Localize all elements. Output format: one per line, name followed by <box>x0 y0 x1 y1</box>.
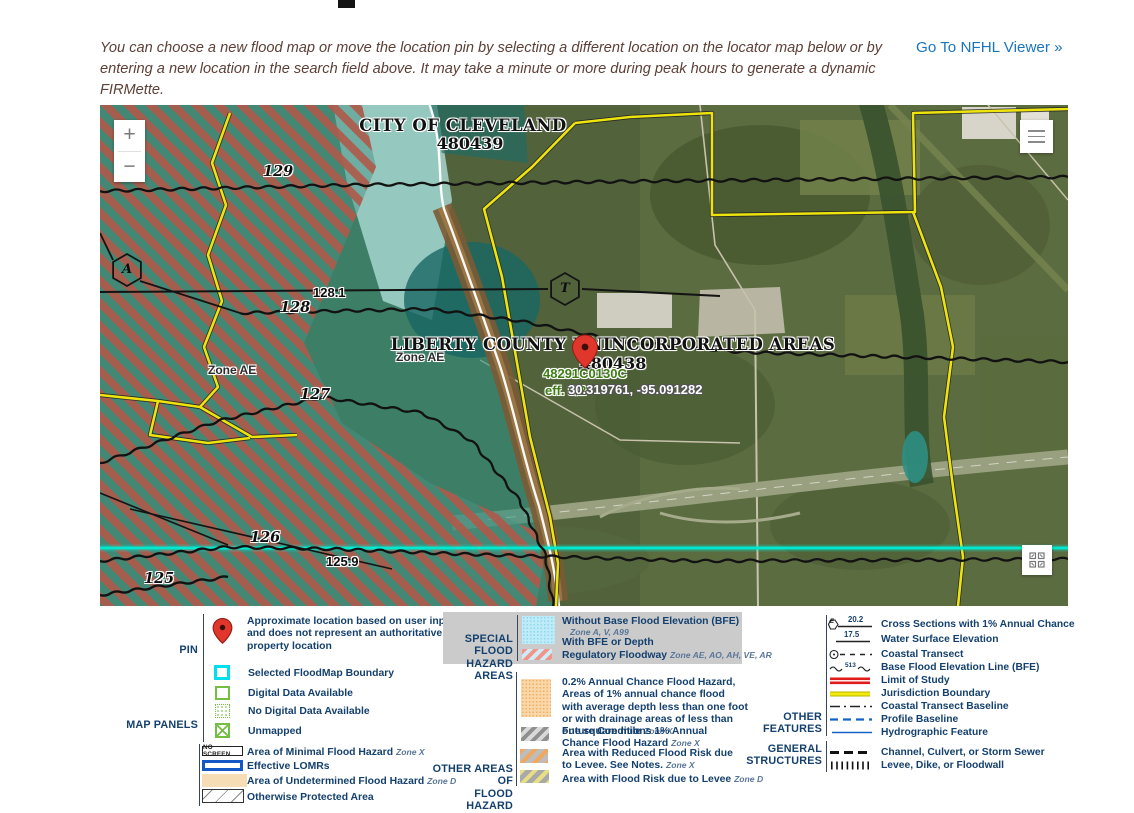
location-pin[interactable] <box>571 334 599 372</box>
no-digital-data-swatch <box>215 704 230 718</box>
zone-ae-label-left: Zone AE <box>208 363 256 377</box>
legend-entry: Levee, Dike, or Floodwall <box>881 760 1004 771</box>
map-menu-button[interactable] <box>1020 120 1053 153</box>
profile-baseline-symbol <box>828 713 874 726</box>
legend-entry: Area of Minimal Flood Hazard Zone X <box>247 747 425 759</box>
legend-entry: With BFE or Depth <box>562 637 654 649</box>
divider <box>826 741 827 772</box>
hexagon-letter: E <box>830 619 834 625</box>
divider <box>199 744 200 806</box>
legend-entry: Cross Sections with 1% Annual Chance <box>881 619 1075 630</box>
legend-entry: Jurisdiction Boundary <box>881 688 990 699</box>
sfha-cyan-swatch <box>522 616 555 644</box>
legend-row: Coastal Transect Baseline <box>828 700 1009 713</box>
bfe-label-129: 129 <box>263 163 293 180</box>
legend-entry: Effective LOMRs <box>247 761 330 773</box>
legend-entry: Coastal Transect Baseline <box>881 701 1009 712</box>
banner-fragment <box>338 0 355 8</box>
hexagon-a-letter: A <box>122 262 132 277</box>
legend-row: 513 Base Flood Elevation Line (BFE) <box>828 661 1039 674</box>
general-structures-section-label: GENERALSTRUCTURES <box>744 743 822 768</box>
bfe-label-128: 128 <box>280 299 310 316</box>
divider <box>203 614 204 664</box>
panels-grid-icon <box>1029 552 1045 568</box>
building-complex <box>597 293 672 328</box>
legend-entry: Future Conditions 1% Annual Chance Flood… <box>562 726 722 751</box>
point2pct-swatch <box>521 679 551 717</box>
legend-row: Jurisdiction Boundary <box>828 687 990 700</box>
legend-entry: Regulatory Floodway Zone AE, AO, AH, VE,… <box>562 650 772 662</box>
water-surface-value: 17.5 <box>844 630 859 639</box>
legend-entry: Limit of Study <box>881 675 950 686</box>
legend-entry: Profile Baseline <box>881 714 958 725</box>
legend-entry: Base Flood Elevation Line (BFE) <box>881 662 1039 673</box>
coastal-transect-symbol <box>828 648 874 661</box>
legend-entry: Channel, Culvert, or Storm Sewer <box>881 747 1045 758</box>
bfe-label-127: 127 <box>300 386 330 403</box>
effective-lomrs-swatch <box>202 760 243 771</box>
legend-entry: Selected FloodMap Boundary <box>248 668 394 680</box>
print-extent-button[interactable] <box>1022 545 1052 575</box>
zoom-control: + − <box>114 120 145 182</box>
hydrographic-feature-symbol <box>828 726 874 739</box>
other-features-section-label: OTHERFEATURES <box>762 711 822 736</box>
legend-entry: Unmapped <box>248 726 302 738</box>
legend-entry: Coastal Transect <box>881 649 963 660</box>
divider <box>826 615 827 736</box>
menu-icon <box>1028 130 1045 132</box>
legend-row: Limit of Study <box>828 674 950 687</box>
bfe-label-125: 125 <box>144 570 174 587</box>
legend-entry: Area of Undetermined Flood Hazard Zone D <box>247 776 456 788</box>
legend-row: Profile Baseline <box>828 713 958 726</box>
reduced-risk-levee-swatch <box>520 749 548 763</box>
page: You can choose a new flood map or move t… <box>0 0 1134 813</box>
intro-text: You can choose a new flood map or move t… <box>100 38 922 101</box>
divider <box>517 615 518 661</box>
legend-entry: Hydrographic Feature <box>881 727 988 738</box>
legend-entry: Area with Reduced Flood Risk due to Leve… <box>562 748 742 773</box>
legend-zone: Zone A, V, A99 <box>570 627 629 637</box>
locator-map[interactable]: CITY OF CLEVELAND 480439 LIBERTY COUNTY … <box>100 105 1068 606</box>
otherwise-protected-swatch <box>202 789 244 803</box>
levee-dike-symbol <box>828 759 874 772</box>
legend-entry: Area with Flood Risk due to Levee Zone D <box>562 774 763 786</box>
jurisdiction-boundary-symbol <box>828 687 874 700</box>
legend-entry: Water Surface Elevation <box>881 634 999 645</box>
nfhl-viewer-link[interactable]: Go To NFHL Viewer » <box>916 39 1063 56</box>
regulatory-floodway-swatch <box>522 649 552 660</box>
bfe-line-value: 513 <box>845 662 856 669</box>
zoom-in-button[interactable]: + <box>114 120 145 151</box>
zoom-out-button[interactable]: − <box>114 152 145 183</box>
legend-row: 17.5 Water Surface Elevation <box>828 633 999 646</box>
channel-culvert-symbol <box>828 746 874 759</box>
legend-row: Channel, Culvert, or Storm Sewer <box>828 746 1045 759</box>
undetermined-hazard-swatch <box>202 774 247 787</box>
city-id-label: 480439 <box>437 134 504 153</box>
pin-coordinates-label: 30.319761, -95.091282 <box>568 382 702 397</box>
unmapped-swatch <box>215 723 230 738</box>
legend: PIN Approximate location based on user i… <box>0 606 1134 813</box>
water-surface-symbol: 17.5 <box>828 633 874 646</box>
legend-entry: Digital Data Available <box>248 688 353 700</box>
pond <box>902 431 928 483</box>
other-areas-section-label: OTHER AREAS OFFLOOD HAZARD <box>428 763 513 813</box>
legend-row: E 20.2 Cross Sections with 1% Annual Cha… <box>828 618 1075 631</box>
cross-section-value: 20.2 <box>848 615 863 624</box>
cross-section-label-125-9: 125.9 <box>326 554 359 569</box>
legend-entry: Otherwise Protected Area <box>247 792 374 804</box>
selected-floodmap-boundary-swatch <box>214 665 230 680</box>
flood-risk-levee-swatch <box>520 770 549 783</box>
sfha-section-label: SPECIAL FLOODHAZARD AREAS <box>443 633 513 683</box>
digital-data-available-swatch <box>215 686 230 700</box>
cross-section-label-128-1: 128.1 <box>313 285 346 300</box>
pin-description: Approximate location based on user input… <box>247 616 469 653</box>
legend-row: Coastal Transect <box>828 648 963 661</box>
map-panels-section-label: MAP PANELS <box>115 719 198 731</box>
pin-section-label: PIN <box>130 644 198 656</box>
coastal-transect-baseline-symbol <box>828 700 874 713</box>
divider <box>516 672 517 786</box>
no-screen-swatch: NO SCREEN <box>202 746 243 756</box>
county-label: LIBERTY COUNTY UNINCORPORATED AREAS <box>391 335 835 354</box>
divider <box>203 660 204 742</box>
city-label: CITY OF CLEVELAND <box>359 116 566 135</box>
future-conditions-swatch <box>521 727 549 741</box>
legend-entry: No Digital Data Available <box>248 706 370 718</box>
limit-of-study-symbol <box>828 674 874 687</box>
no-screen-text: NO SCREEN <box>203 744 242 758</box>
hexagon-t-letter: T <box>560 281 570 296</box>
legend-row: Levee, Dike, or Floodwall <box>828 759 1004 772</box>
legend-pin-icon <box>212 617 233 647</box>
bfe-line-symbol: 513 <box>828 661 874 674</box>
bfe-label-126: 126 <box>250 529 280 546</box>
legend-row: Hydrographic Feature <box>828 726 988 739</box>
